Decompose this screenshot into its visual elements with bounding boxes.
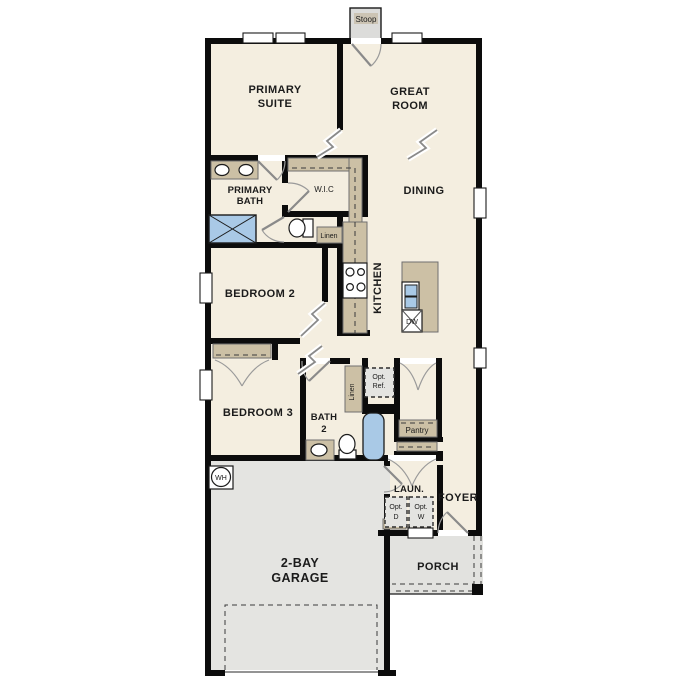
opt-d-label-2: D [393, 514, 398, 521]
bath2-label-1: BATH [311, 412, 337, 423]
dining-label: DINING [404, 185, 445, 197]
wall-bedroom2-right [322, 242, 328, 302]
primary-suite-label-1: PRIMARY [248, 84, 301, 96]
stove [343, 263, 367, 298]
stoop-label: Stoop [356, 15, 377, 24]
window-bedroom2 [200, 273, 212, 303]
wic-label: W.I.C [314, 185, 334, 194]
wall-suite-bath [205, 155, 258, 161]
window-greatroom [392, 33, 422, 43]
window-bedroom3 [200, 370, 212, 400]
opt-ref-label-2: Ref. [373, 383, 386, 390]
floorplan-canvas: Stoop PRIMARY SUITE GREAT ROOM PRIMARY B… [0, 0, 687, 687]
bedroom2-label: BEDROOM 2 [225, 288, 295, 300]
wall-tub-head [362, 404, 396, 414]
foyer-label: FOYER [438, 492, 478, 504]
burner-2 [358, 269, 365, 276]
wall-garage-top [205, 455, 384, 461]
wh-label: WH [215, 475, 227, 482]
burner-4 [357, 283, 365, 291]
bath2-sink [311, 444, 327, 456]
wall-left [205, 38, 211, 676]
wall-wic-right [362, 155, 368, 217]
primary-bath-label-1: PRIMARY [228, 185, 273, 196]
porch-post [472, 584, 483, 595]
wall-laundry-jamb-right [436, 455, 443, 461]
wall-bed3-closet-stub [272, 343, 278, 360]
vanity-sink-1 [215, 165, 229, 176]
bathtub [363, 413, 384, 460]
window-hall [474, 348, 486, 368]
wall-pantry-bottom [394, 437, 443, 442]
opt-d-label-1: Opt. [389, 504, 402, 511]
opt-w-label-2: W [418, 514, 425, 521]
opt-w-label-1: Opt. [414, 504, 427, 511]
laundry-label: LAUN. [394, 484, 424, 495]
window-dining [474, 188, 486, 218]
island-sink-bowl-2 [405, 297, 417, 308]
wall-right [476, 38, 482, 536]
window-suite-1 [243, 33, 273, 43]
bedroom3-label: BEDROOM 3 [223, 407, 293, 419]
kitchen-label: KITCHEN [372, 262, 384, 314]
garage-door-opening [225, 670, 378, 676]
wall-suite-greatroom [337, 38, 343, 130]
primary-bath-label-2: BATH [237, 196, 263, 207]
garage-label-1: 2-BAY [281, 556, 320, 570]
laundry-door-gap [388, 455, 436, 461]
toilet2-bowl [339, 435, 355, 454]
wall-bedroom2-bottom [205, 338, 300, 344]
linen-primary-label: Linen [320, 233, 337, 240]
window-laundry [408, 528, 433, 538]
primary-suite-label-2: SUITE [258, 98, 292, 110]
great-room-label-1: GREAT [390, 86, 430, 98]
island-sink-bowl-1 [405, 285, 417, 296]
burner-1 [346, 268, 354, 276]
great-room-label-2: ROOM [392, 100, 428, 112]
pantry-label: Pantry [405, 426, 428, 435]
burner-3 [347, 284, 354, 291]
bed3-closet-shelf [213, 344, 271, 358]
opt-dryer [385, 497, 407, 527]
front-door-gap [438, 530, 468, 536]
window-suite-2 [276, 33, 305, 43]
floorplan-svg: Stoop PRIMARY SUITE GREAT ROOM PRIMARY B… [0, 0, 687, 687]
bath2-label-2: 2 [321, 424, 326, 435]
opt-washer [409, 497, 433, 527]
dw-label: DW [406, 319, 418, 326]
stoop-pad [350, 8, 381, 41]
primary-bath-door-gap [258, 155, 285, 161]
vanity-sink-2 [239, 165, 253, 176]
toilet1-bowl [289, 219, 305, 237]
pantry-door-gap [400, 358, 436, 364]
opt-ref-label-1: Opt. [372, 374, 385, 381]
entry-door-gap [351, 38, 381, 44]
porch-label: PORCH [417, 561, 459, 573]
garage-label-2: GARAGE [271, 571, 328, 585]
linen-bath2-label: Linen [349, 383, 356, 400]
